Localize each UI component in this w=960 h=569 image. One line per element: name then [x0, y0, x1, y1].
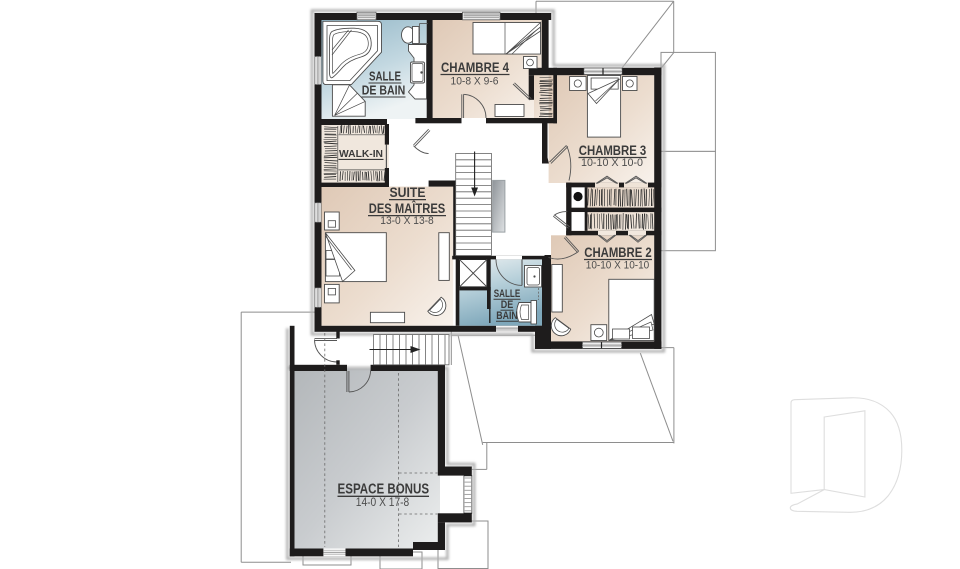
svg-text:BAIN: BAIN — [496, 310, 518, 322]
svg-text:SALLE: SALLE — [369, 69, 401, 84]
svg-text:CHAMBRE 2: CHAMBRE 2 — [584, 245, 652, 260]
svg-text:14-0 X 17-8: 14-0 X 17-8 — [356, 495, 410, 509]
svg-text:10-10 X 10-10: 10-10 X 10-10 — [586, 260, 650, 272]
svg-text:DE BAIN: DE BAIN — [362, 83, 406, 98]
svg-text:13-0 X 13-8: 13-0 X 13-8 — [380, 215, 434, 227]
svg-text:WALK-IN: WALK-IN — [339, 149, 383, 160]
svg-text:DES MAÎTRES: DES MAÎTRES — [369, 201, 446, 216]
svg-text:SUITE: SUITE — [390, 185, 426, 200]
svg-text:CHAMBRE 4: CHAMBRE 4 — [441, 60, 509, 76]
svg-text:10-8 X 9-6: 10-8 X 9-6 — [451, 76, 499, 88]
svg-text:10-10 X 10-0: 10-10 X 10-0 — [581, 157, 643, 169]
